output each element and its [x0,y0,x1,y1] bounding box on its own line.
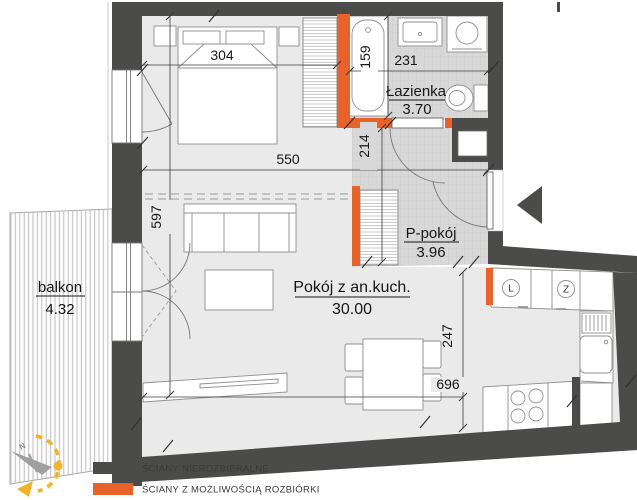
legend-label-removable: ŚCIANY Z MOŻLIWOŚCIĄ ROZBIÓRKI [142,484,320,496]
floor-plan-drawing: L Z [0,0,637,500]
dim-apartment-depth: 597 [148,205,164,229]
dim-kitchen-depth: 247 [439,324,455,348]
orange-wall-hall [352,186,360,266]
toilet [445,85,488,111]
pillow [183,31,220,44]
nightstand-right [279,27,299,46]
exterior-wall-mark [557,2,560,12]
dim-bathroom-width: 231 [394,52,418,68]
legend-label-structural: ŚCIANY NIEROZBIERALNE [142,463,269,475]
kitchen-counter-right [580,311,613,383]
sun-dot-icon [54,462,63,471]
kitchen-sink [580,336,612,373]
bedroom-wardrobe [303,18,337,127]
washing-machine [447,16,487,52]
room-area-bathroom: 3.70 [402,101,431,118]
sofa [184,204,296,252]
chair [345,377,363,404]
chair [345,344,363,371]
dim-living-width: 696 [436,376,460,392]
bathroom-sink [398,18,442,46]
bed [178,27,277,144]
kitchen-counter-bottom [483,381,577,434]
drainer [582,313,611,333]
dim-hall-depth: 214 [356,134,372,158]
floor-plan: L Z [0,0,637,500]
wall-kitchen-stub [572,377,580,432]
dim-bedroom-width: 304 [210,47,234,63]
wall-left-upper [112,16,142,70]
room-area-hall: 3.96 [416,244,445,261]
legend-swatch-removable [93,483,133,495]
legend-swatch-structural [93,462,133,474]
room-area-balcony: 4.32 [45,301,74,318]
shaft [452,118,503,162]
coffee-table [205,270,273,310]
room-label-hall: P-pokój [406,225,457,242]
orange-wall-door-stub [445,118,452,128]
dim-bathtub-wall: 159 [357,45,373,69]
nightstand-left [154,26,176,46]
room-label-living: Pokój z an.kuch. [293,279,410,296]
room-label-balcony: balkon [38,279,82,296]
dishwasher-label: Z [563,285,569,296]
dining-table [363,339,423,410]
fridge-label: L [508,284,514,295]
hall-wardrobe [360,190,398,265]
dim-living-upper-width: 550 [276,151,300,167]
pillow [226,31,264,44]
wall-left-middle [112,143,142,243]
kitchen-niche [580,383,612,427]
wall-top [112,2,503,16]
orange-wall-kitchen-stub [486,268,493,305]
room-area-living: 30.00 [332,301,372,318]
room-label-bathroom: Łazienka [386,83,447,100]
